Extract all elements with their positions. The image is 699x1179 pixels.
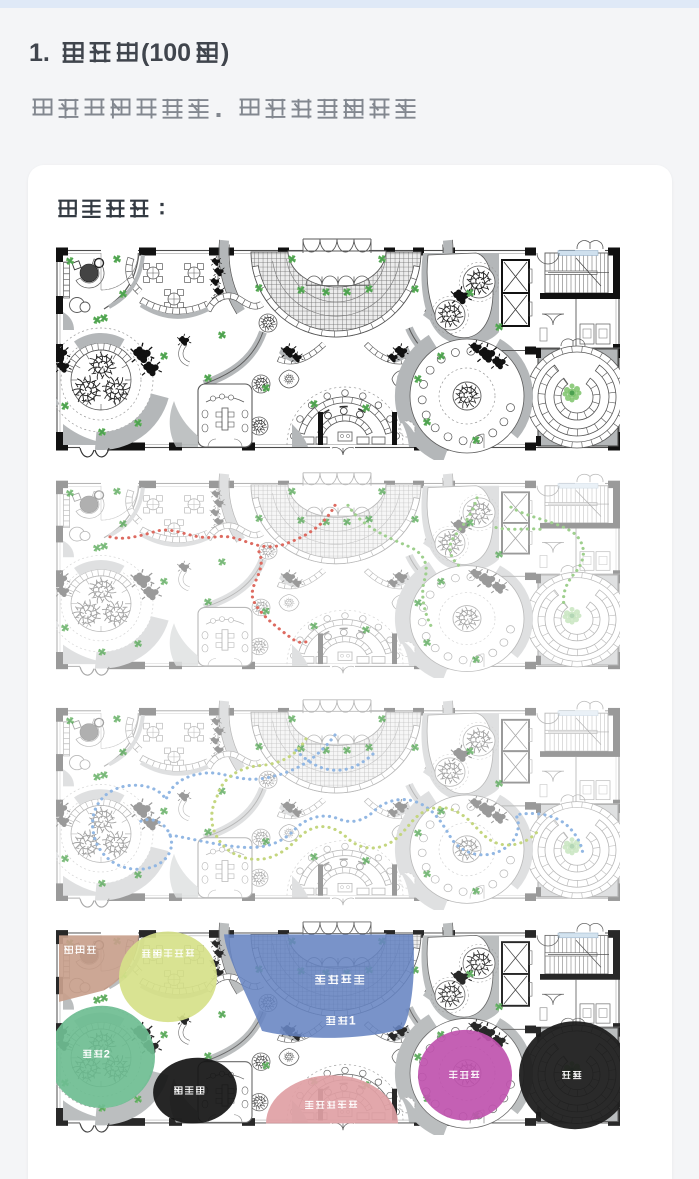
svg-text:1.: 1. — [29, 39, 50, 67]
svg-text:(100: (100 — [141, 39, 191, 67]
svg-text:): ) — [221, 39, 229, 67]
svg-text:1: 1 — [349, 1014, 356, 1028]
svg-text:2: 2 — [104, 1049, 110, 1061]
